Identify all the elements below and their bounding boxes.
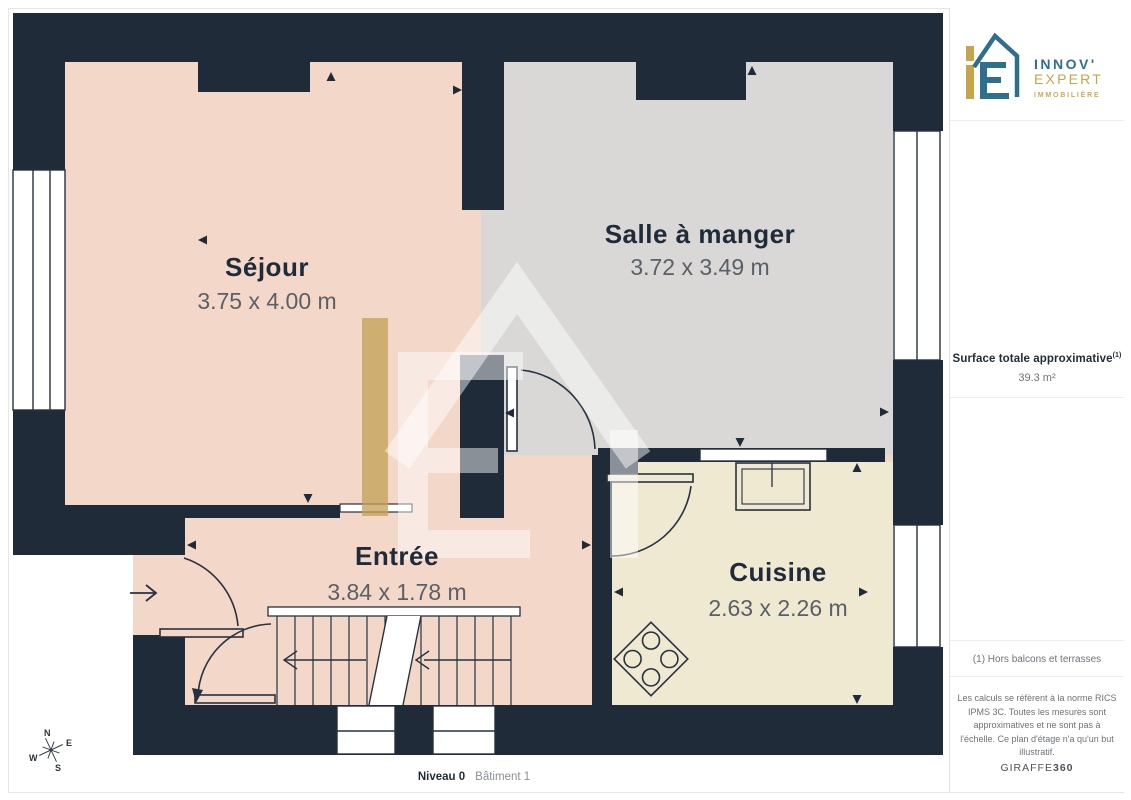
agency-logo: INNOV' EXPERT IMMOBILIÈRE bbox=[958, 22, 1118, 108]
wall-right-upper bbox=[893, 13, 943, 131]
room-label-sejour: Séjour bbox=[225, 252, 309, 282]
window-bottom-left bbox=[337, 706, 395, 754]
wall-left-upper bbox=[13, 62, 65, 170]
room-label-entree: Entrée bbox=[355, 541, 439, 571]
compass-n-label: N bbox=[44, 728, 51, 738]
level-label: Niveau 0 bbox=[418, 771, 465, 783]
brand-giraffe360: GIRAFFE360 bbox=[950, 762, 1124, 774]
sidebar-divider bbox=[950, 640, 1124, 641]
building-label: Bâtiment 1 bbox=[475, 771, 530, 783]
compass-w-label: W bbox=[29, 753, 38, 763]
logo-i-dot bbox=[966, 46, 974, 61]
window-bottom-right bbox=[433, 706, 495, 754]
surface-footnote-marker: (1) bbox=[1113, 352, 1122, 359]
room-label-cuisine: Cuisine bbox=[729, 557, 826, 587]
watermark-i-stem bbox=[362, 318, 388, 516]
plan-footer: Niveau 0Bâtiment 1 bbox=[0, 771, 948, 783]
agency-logo-mark bbox=[966, 36, 1017, 99]
wall-sejour-entree bbox=[65, 505, 340, 518]
wall-top bbox=[13, 13, 943, 62]
surface-value: 39.3 m² bbox=[950, 372, 1124, 384]
stair-stringer bbox=[268, 607, 520, 616]
wall-front-door-stub bbox=[133, 635, 185, 707]
kitchen-hatch bbox=[700, 449, 827, 461]
room-dims-sejour: 3.75 x 4.00 m bbox=[197, 288, 336, 314]
window-left bbox=[13, 170, 65, 410]
room-dims-salle-a-manger: 3.72 x 3.49 m bbox=[630, 254, 769, 280]
wall-entree-cuisine bbox=[592, 455, 612, 707]
wall-right-mid bbox=[893, 360, 943, 525]
logo-i-stem bbox=[966, 65, 974, 99]
logo-name-top: INNOV' bbox=[1034, 56, 1097, 72]
wall-bottom bbox=[133, 705, 943, 755]
wall-left-lower bbox=[13, 410, 65, 507]
surface-label: Surface totale approximative(1) bbox=[950, 352, 1124, 365]
sidebar-divider bbox=[950, 676, 1124, 677]
logo-name-bottom: EXPERT bbox=[1034, 71, 1103, 87]
wall-top-pillar-right bbox=[636, 62, 746, 100]
sidebar-divider bbox=[950, 397, 1124, 398]
disclaimer-text: Les calculs se réfèrent à la norme RICS … bbox=[957, 692, 1117, 760]
door-leaf-front bbox=[160, 629, 243, 637]
sidebar: INNOV' EXPERT IMMOBILIÈRE Surface totale… bbox=[949, 8, 1124, 792]
compass-e-label: E bbox=[66, 738, 72, 748]
footnote-text: (1) Hors balcons et terrasses bbox=[950, 654, 1124, 665]
sidebar-divider bbox=[950, 120, 1124, 121]
wall-center-upper bbox=[462, 62, 504, 210]
wall-top-pillar-left bbox=[198, 62, 310, 92]
room-label-salle-a-manger: Salle à manger bbox=[605, 219, 796, 249]
compass-icon: N E S W bbox=[29, 728, 72, 773]
room-dims-entree: 3.84 x 1.78 m bbox=[327, 579, 466, 605]
wall-right-lower bbox=[893, 647, 943, 755]
surface-summary: Surface totale approximative(1) 39.3 m² bbox=[950, 352, 1124, 384]
logo-tagline: IMMOBILIÈRE bbox=[1034, 90, 1100, 99]
logo-e-letter bbox=[980, 62, 1009, 99]
room-dims-cuisine: 2.63 x 2.26 m bbox=[708, 595, 847, 621]
understairs-door-leaf bbox=[195, 695, 275, 703]
